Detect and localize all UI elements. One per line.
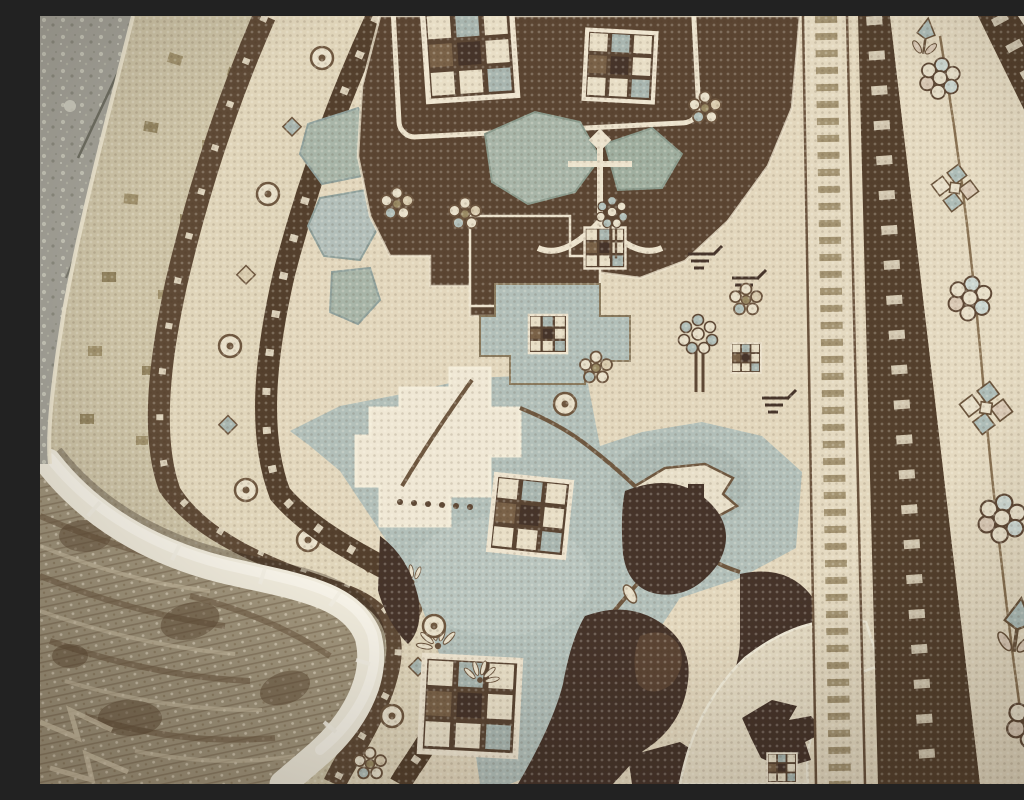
- vignette-overlay: [40, 16, 1024, 784]
- photo-vintage-rug: [40, 16, 1024, 784]
- rug-photo-canvas: [40, 16, 1024, 784]
